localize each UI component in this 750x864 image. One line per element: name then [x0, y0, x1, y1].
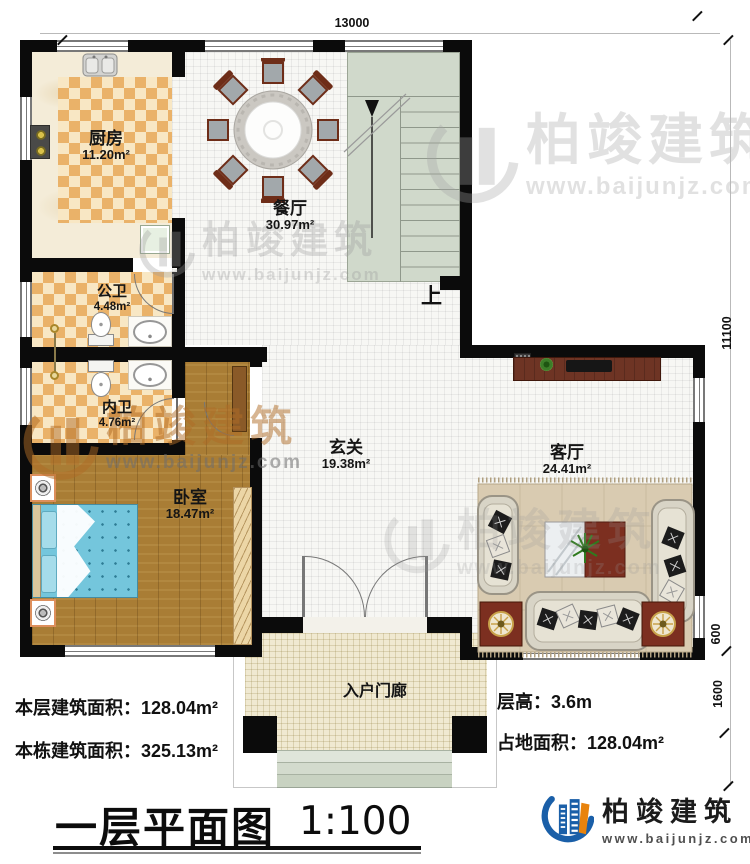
brand-site: www.baijunjz.com: [602, 831, 750, 846]
label-kitchen: 厨房 11.20m²: [82, 129, 130, 163]
drawing-scale: 1:100: [299, 799, 411, 844]
dim-right-600: 600: [709, 614, 723, 654]
wall-stair-right: [460, 40, 472, 358]
stat-footprint: 占地面积：128.04m²: [497, 729, 664, 755]
towel-hook-bottom: [50, 371, 59, 380]
floor-plan: 柏竣建筑www.baijunjz.com 柏竣建筑www.baijunjz.co…: [0, 0, 750, 864]
porch-pillar-left: [243, 716, 277, 753]
label-foyer: 玄关 19.38m²: [322, 438, 370, 472]
wall-bedroom-bottom-a: [20, 645, 65, 657]
window-top-3: [345, 40, 443, 52]
label-living: 客厅 24.41m²: [543, 443, 591, 477]
dim-tick: [692, 11, 703, 22]
label-stair-up: 上: [421, 280, 442, 310]
brand-logo-icon: [540, 791, 594, 845]
stat-floor-area: 本层建筑面积：128.04m²: [15, 694, 218, 720]
porch-pillar-right: [452, 716, 487, 753]
nightstand-bottom: [30, 599, 56, 627]
stat-total-area: 本栋建筑面积：325.13m²: [15, 737, 218, 763]
sofa-set: [468, 474, 696, 658]
label-private-bath: 内卫 4.76m²: [99, 400, 135, 430]
private-bath-door-leaf: [176, 398, 178, 440]
window-left-public-bath: [20, 282, 32, 337]
wall-kitchen-partition-top: [172, 40, 185, 77]
public-bath-sink: [133, 320, 167, 344]
window-left-private-bath: [20, 368, 32, 425]
watermark-url: www.baijunjz.com: [526, 174, 750, 199]
tv-plant: [540, 358, 553, 371]
window-right-living-1: [693, 378, 705, 422]
kitchen-sink: [82, 53, 118, 77]
dim-tick: [723, 35, 734, 46]
tv-screen: [566, 360, 612, 372]
public-bath-toilet-bowl: [91, 312, 111, 337]
brand-name: 柏竣建筑: [602, 790, 750, 829]
dim-line-right: [730, 40, 731, 786]
watermark-living-top: 柏竣建筑www.baijunjz.com: [425, 112, 750, 207]
wardrobe: [233, 487, 252, 645]
wall-kitchen-bottom-b: [177, 258, 185, 272]
towel-hook-top: [50, 324, 59, 333]
wall-bath-right-lower: [172, 362, 185, 398]
wall-bedroom-bottom-b: [215, 645, 262, 657]
label-public-bath: 公卫 4.48m²: [94, 284, 130, 314]
watermark-brand: 柏竣建筑: [526, 112, 750, 170]
dining-set: [207, 58, 339, 203]
dim-right-11100: 11100: [720, 303, 734, 363]
window-top-1: [57, 40, 128, 52]
wall-bedroom-divider-stub: [250, 362, 262, 367]
brand-logo: 柏竣建筑 www.baijunjz.com: [540, 790, 750, 846]
kitchen-stove: [30, 125, 50, 159]
title-underline-thin: [53, 852, 421, 854]
wall-private-bath-bottom: [20, 443, 185, 455]
kitchen-fridge: [140, 225, 170, 254]
entry-door-sill: [303, 617, 427, 633]
dim-tick: [719, 728, 730, 739]
dim-right-1600: 1600: [711, 674, 725, 714]
wall-kitchen-bottom-a: [20, 258, 133, 272]
entry-door-leaf-right: [425, 556, 428, 617]
nightstand-top: [30, 474, 56, 502]
stair-landing-line: [347, 96, 400, 97]
stat-storey-height: 层高：3.6m: [497, 688, 592, 714]
private-bath-toilet-tank: [88, 360, 114, 372]
window-bedroom-bottom: [65, 645, 215, 657]
stair-treads: [400, 96, 460, 282]
wall-stair-stub: [440, 276, 472, 290]
label-dining: 餐厅 30.97m²: [266, 199, 314, 233]
bed-pillow-2: [41, 555, 57, 593]
porch-step-3: [277, 774, 452, 788]
wall-foyer-bottom-left: [250, 617, 303, 633]
label-bedroom: 卧室 18.47m²: [166, 488, 214, 522]
window-top-2: [205, 40, 313, 52]
towel-rail: [54, 333, 56, 373]
bed-pillow-1: [41, 511, 57, 549]
dim-top-13000: 13000: [322, 16, 382, 30]
label-porch: 入户门廊: [343, 683, 407, 701]
bedroom-door-leaf: [232, 366, 247, 432]
bed-headboard: [33, 505, 41, 597]
private-bath-toilet-bowl: [91, 372, 111, 397]
private-bath-sink: [133, 363, 167, 387]
title-underline: [53, 846, 421, 850]
bed: [32, 504, 138, 598]
dim-line-top: [40, 33, 720, 34]
